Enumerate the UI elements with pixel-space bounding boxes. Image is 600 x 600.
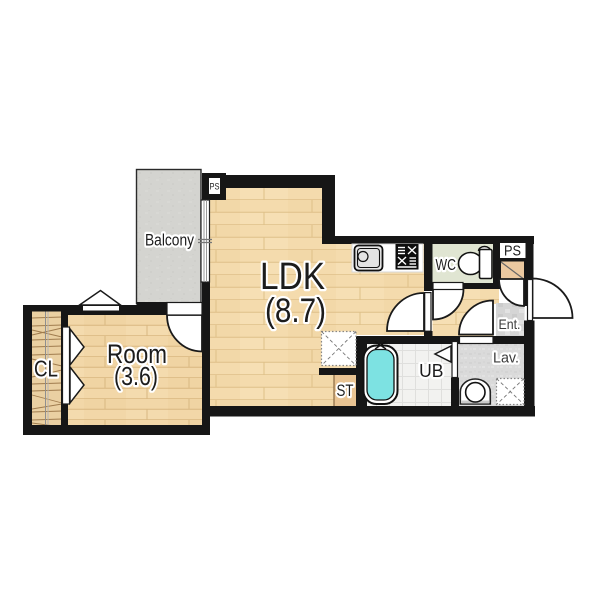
svg-text:Ent.: Ent. (499, 316, 521, 332)
svg-text:WC: WC (436, 257, 457, 274)
svg-text:CL: CL (34, 356, 58, 382)
svg-text:Lav.: Lav. (493, 350, 519, 367)
svg-text:(8.7): (8.7) (265, 292, 326, 330)
svg-text:PS: PS (210, 182, 220, 192)
svg-text:PS: PS (504, 243, 521, 260)
svg-text:(3.6): (3.6) (114, 361, 158, 391)
svg-text:Balcony: Balcony (145, 231, 194, 250)
svg-text:ST: ST (337, 381, 354, 400)
svg-text:UB: UB (419, 361, 443, 381)
